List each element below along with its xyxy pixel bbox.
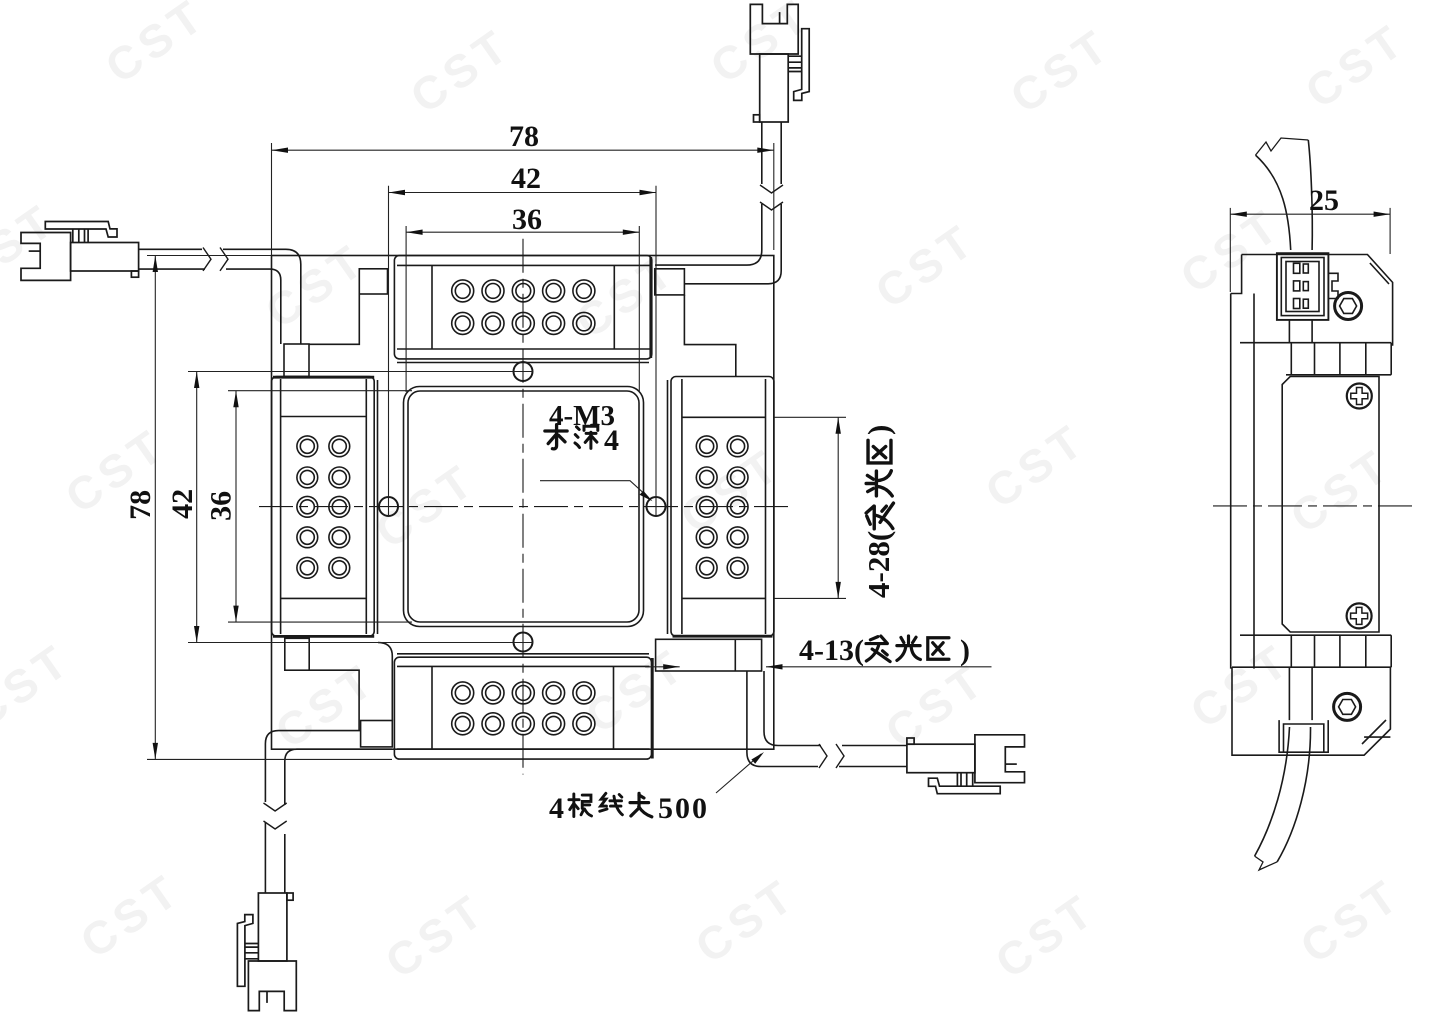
svg-text:4: 4 bbox=[604, 424, 619, 457]
svg-text:36: 36 bbox=[512, 203, 542, 236]
svg-text:500: 500 bbox=[658, 792, 709, 825]
svg-text:36: 36 bbox=[205, 491, 238, 521]
svg-text:): ) bbox=[861, 425, 896, 435]
svg-text:42: 42 bbox=[166, 489, 199, 519]
svg-text:25: 25 bbox=[1309, 184, 1339, 217]
svg-text:): ) bbox=[960, 634, 970, 667]
svg-text:4: 4 bbox=[549, 792, 564, 825]
svg-text:4-28(: 4-28( bbox=[861, 531, 896, 598]
svg-text:42: 42 bbox=[511, 162, 541, 195]
svg-text:4-13(: 4-13( bbox=[799, 634, 864, 667]
svg-text:78: 78 bbox=[509, 120, 539, 153]
svg-text:78: 78 bbox=[124, 490, 157, 520]
